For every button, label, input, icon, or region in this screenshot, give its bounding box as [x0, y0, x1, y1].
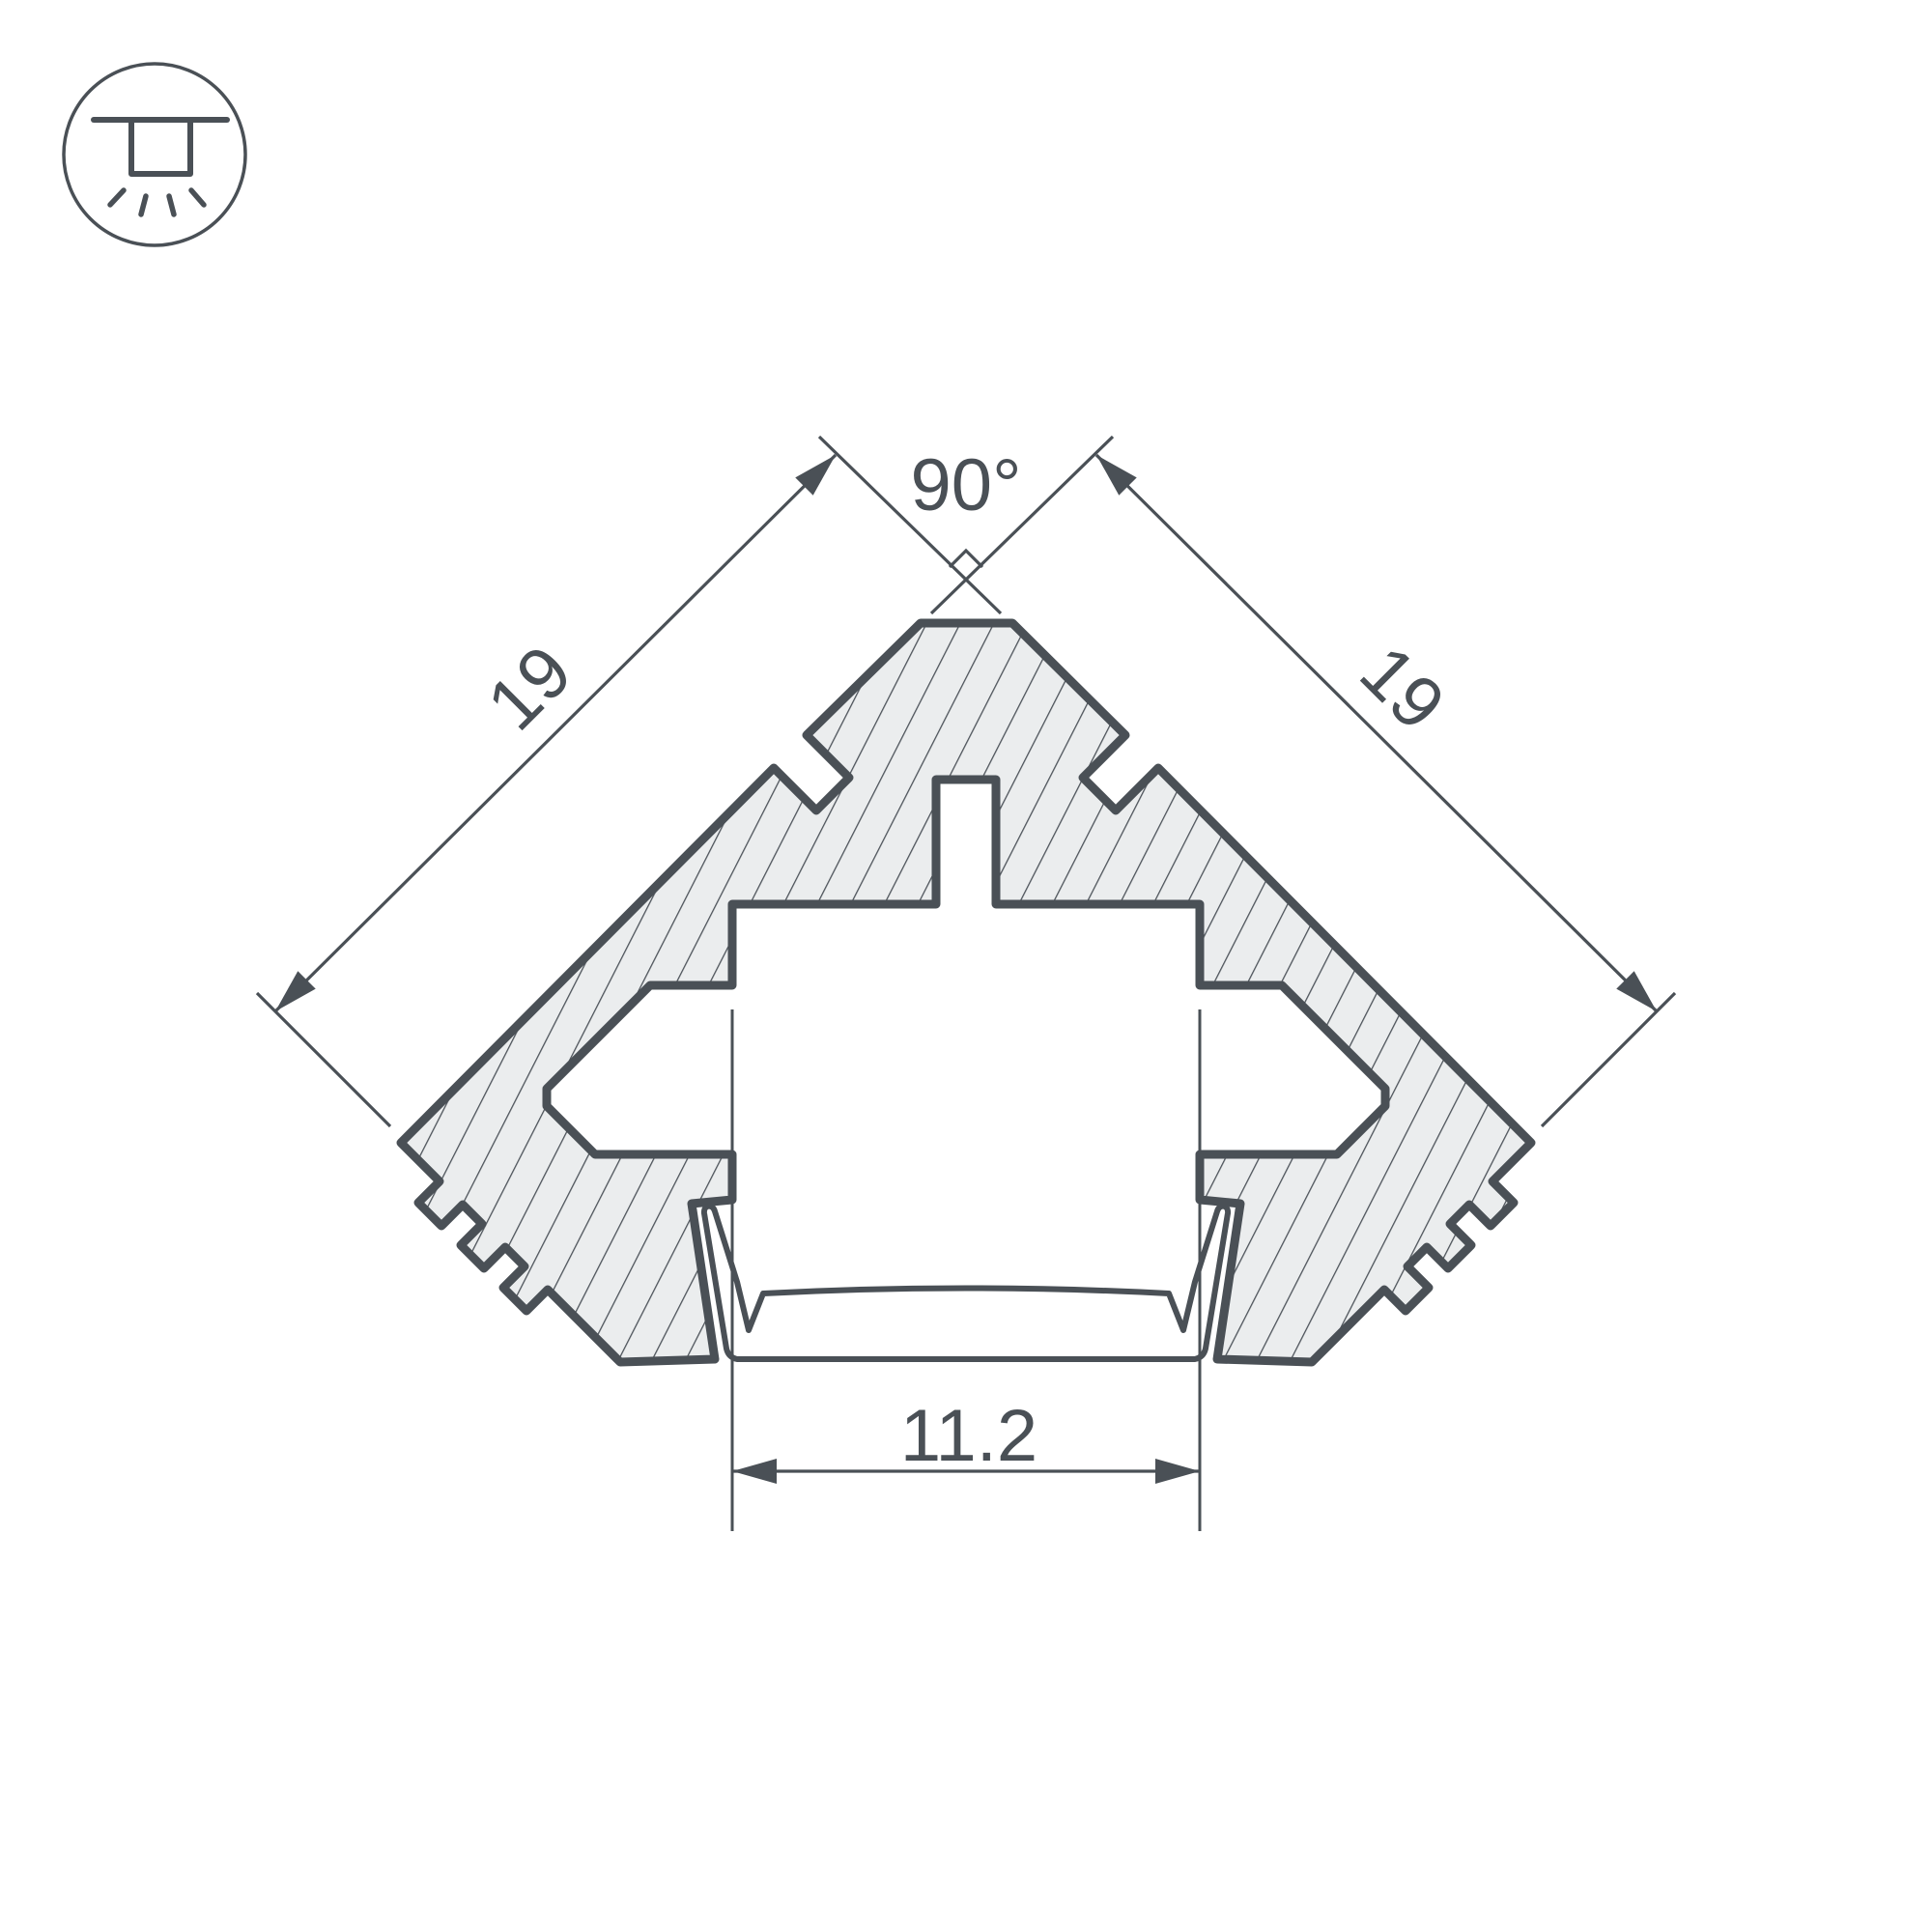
dimension-angle: 90° [819, 437, 1113, 613]
arrowhead [732, 1459, 777, 1484]
drawing-canvas: 90° 19 19 11.2 [0, 0, 1932, 1932]
right-angle-marker [950, 551, 982, 567]
diffuser-cover [704, 1207, 1228, 1359]
angle-label: 90° [911, 444, 1022, 526]
right-side-label: 19 [1345, 630, 1461, 746]
profile-outline [401, 623, 1531, 1362]
icon-fixture-box [131, 120, 190, 174]
extension-line-right-bottom [1542, 993, 1675, 1126]
arrowhead [1155, 1459, 1200, 1484]
icon-circle [64, 64, 245, 245]
icon-light-rays [110, 190, 204, 214]
bottom-width-label: 11.2 [900, 1395, 1037, 1477]
left-side-label: 19 [471, 630, 587, 746]
dimension-line-left [275, 455, 836, 1011]
profile-body [401, 623, 1531, 1362]
recessed-ceiling-light-icon [64, 64, 245, 245]
profile-cross-section-diagram: 90° 19 19 11.2 [0, 0, 1932, 1932]
dimension-line-right [1096, 455, 1657, 1011]
dimension-bottom-width: 11.2 [732, 1009, 1200, 1531]
extension-line-left-bottom [257, 993, 390, 1126]
